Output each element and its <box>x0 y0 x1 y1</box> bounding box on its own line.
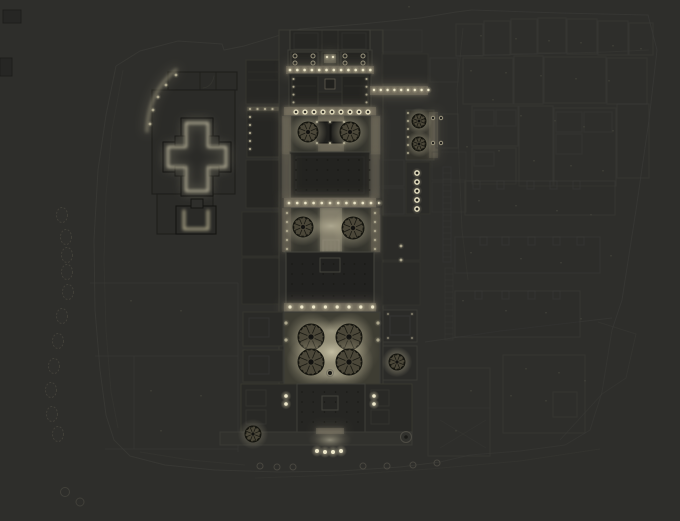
label-speck <box>560 262 562 263</box>
light-dot <box>374 221 376 223</box>
light-dot <box>407 128 409 130</box>
light-dot <box>264 108 266 110</box>
label-speck <box>510 395 512 396</box>
light-dot <box>387 313 389 315</box>
column-dot <box>354 295 356 297</box>
column-dot <box>358 189 360 191</box>
column-dot <box>312 295 314 297</box>
light-dot <box>293 101 295 103</box>
light-dot <box>331 450 335 454</box>
column-dot <box>295 189 297 191</box>
roadside-tree <box>53 427 64 442</box>
light-dot <box>366 86 368 88</box>
column-dot <box>322 263 324 265</box>
column-dot <box>295 159 297 161</box>
light-dot <box>359 305 362 308</box>
light-dot <box>288 305 291 308</box>
column-dot <box>322 283 324 285</box>
column-dot <box>328 371 332 375</box>
column-dot <box>337 169 339 171</box>
tree <box>238 419 268 449</box>
lantern-center <box>295 111 297 113</box>
light-dot <box>386 89 388 91</box>
light-dot <box>374 239 376 241</box>
column-dot <box>324 411 326 413</box>
column-dot <box>335 421 337 423</box>
light-dot <box>249 140 251 142</box>
light-dot <box>256 108 258 110</box>
building <box>175 136 185 146</box>
label-speck <box>548 40 550 41</box>
light-dot <box>165 84 168 87</box>
column-dot <box>316 159 318 161</box>
roadside-tree <box>63 285 74 300</box>
column-dot <box>312 421 314 423</box>
label-speck <box>570 165 572 166</box>
label-speck <box>520 115 522 116</box>
light-dot <box>175 74 178 77</box>
lantern-center <box>313 111 315 113</box>
light-dot <box>318 69 321 72</box>
light-dot <box>333 69 336 72</box>
column-dot <box>348 179 350 181</box>
lantern-center <box>416 190 418 192</box>
light-dot <box>303 69 306 72</box>
building <box>246 60 280 104</box>
light-dot <box>286 212 288 214</box>
light-dot <box>376 321 379 324</box>
light-dot <box>411 313 413 315</box>
label-speck <box>540 75 542 76</box>
light-dot <box>427 89 429 91</box>
label-speck <box>462 300 464 301</box>
column-dot <box>316 169 318 171</box>
light-dot <box>400 259 403 262</box>
light-dot <box>329 202 332 205</box>
tree-trunk <box>308 359 313 364</box>
label-speck <box>478 200 480 201</box>
light-dot <box>288 202 291 205</box>
column-dot <box>357 401 359 403</box>
site-plan-canvas <box>0 0 680 521</box>
column-dot <box>327 159 329 161</box>
column-dot <box>306 169 308 171</box>
tree <box>382 347 412 377</box>
tree-trunk <box>418 143 421 146</box>
label-speck <box>492 99 494 100</box>
label-speck <box>545 312 547 313</box>
lantern-center <box>358 111 360 113</box>
roadside-tree <box>57 208 68 223</box>
light-dot <box>249 108 251 110</box>
lantern-center <box>349 111 351 113</box>
column-dot <box>312 283 314 285</box>
column-dot <box>357 421 359 423</box>
light-dot <box>326 56 328 58</box>
dot-row <box>370 86 432 93</box>
column-dot <box>322 295 324 297</box>
column-dot <box>306 159 308 161</box>
comb-building <box>465 181 615 215</box>
column-base-ring <box>293 54 297 58</box>
light-dot <box>362 202 365 205</box>
building <box>342 76 368 105</box>
light-dot <box>337 202 340 205</box>
label-speck <box>583 126 585 127</box>
label-speck <box>602 170 604 171</box>
light-dot <box>339 449 343 453</box>
light-dot <box>420 89 422 91</box>
column-dot <box>301 391 303 393</box>
label-speck <box>470 70 472 71</box>
column-dot <box>354 263 356 265</box>
building <box>191 199 203 208</box>
roadside-tree <box>62 248 73 263</box>
label-speck <box>515 38 517 39</box>
column-dot <box>364 263 366 265</box>
label-speck <box>160 430 162 431</box>
light-dot <box>325 69 328 72</box>
tree <box>331 113 369 151</box>
column-dot <box>357 411 359 413</box>
label-speck <box>640 48 642 49</box>
column-dot <box>343 295 345 297</box>
light-dot <box>374 230 376 232</box>
column-dot <box>333 263 335 265</box>
tree-trunk <box>306 130 310 134</box>
column-dot <box>322 273 324 275</box>
light-dot <box>366 101 368 103</box>
label-speck <box>580 318 582 319</box>
light-dot <box>374 248 376 250</box>
column-dot <box>302 273 304 275</box>
column-dot <box>302 295 304 297</box>
light-dot <box>362 69 365 72</box>
column-dot <box>348 159 350 161</box>
column-dot <box>301 401 303 403</box>
column-dot <box>354 273 356 275</box>
light-dot <box>249 124 251 126</box>
dots <box>328 371 332 375</box>
lantern-center <box>322 111 324 113</box>
light-dot <box>347 69 350 72</box>
corner-block <box>3 10 21 23</box>
label-speck <box>408 6 410 7</box>
light-dot <box>366 78 368 80</box>
light-dot <box>329 121 331 123</box>
label-speck <box>554 120 556 121</box>
label-speck <box>612 45 614 46</box>
column-dot <box>357 391 359 393</box>
label-speck <box>180 310 182 311</box>
column-dot <box>335 411 337 413</box>
roadside-tree <box>62 265 73 280</box>
light-dot <box>376 338 379 341</box>
column-dot <box>301 421 303 423</box>
column-dot <box>364 295 366 297</box>
column-dot <box>343 283 345 285</box>
middle-hall <box>290 152 370 198</box>
label-speck <box>608 80 610 81</box>
light-dot <box>312 202 315 205</box>
light-dot <box>293 86 295 88</box>
roadside-tree <box>61 230 72 245</box>
light-dot <box>336 305 339 308</box>
light-dot <box>387 337 389 339</box>
light-dot <box>311 69 314 72</box>
column-dot <box>312 273 314 275</box>
label-speck <box>545 400 547 401</box>
light-dot <box>152 109 155 112</box>
light-dot <box>332 56 334 58</box>
label-speck <box>455 430 457 431</box>
label-speck <box>150 390 152 391</box>
comb-building <box>455 291 580 337</box>
label-speck <box>584 380 586 381</box>
light-dot <box>271 108 273 110</box>
label-speck <box>470 390 472 391</box>
main-hall <box>286 252 374 305</box>
column-base-ring <box>361 54 365 58</box>
light-dot <box>400 89 402 91</box>
tree-trunk <box>251 432 254 435</box>
label-speck <box>515 205 517 206</box>
light-dot <box>407 152 409 154</box>
column-dot <box>312 401 314 403</box>
light-dot <box>286 239 288 241</box>
roadside-tree <box>53 334 64 349</box>
lantern-center <box>416 208 418 210</box>
column-dot <box>358 179 360 181</box>
tree <box>284 208 322 246</box>
light-dot <box>407 144 409 146</box>
light-dot <box>304 202 307 205</box>
light-dot <box>293 94 295 96</box>
column-dot <box>302 283 304 285</box>
light-dot <box>372 402 376 406</box>
column-dot <box>333 273 335 275</box>
column-dot <box>312 263 314 265</box>
light-dot <box>329 142 331 144</box>
tree <box>324 337 373 386</box>
column-dot <box>312 411 314 413</box>
column-dot <box>354 283 356 285</box>
roadside-tree <box>46 383 57 398</box>
light-dot <box>407 112 409 114</box>
tree-trunk <box>348 130 352 134</box>
column-dot <box>324 391 326 393</box>
light-dot <box>249 132 251 134</box>
light-dot <box>149 123 152 126</box>
tree-trunk <box>351 226 355 230</box>
label-speck <box>575 78 577 79</box>
label-speck <box>533 160 535 161</box>
tree-trunk <box>346 359 351 364</box>
label-speck <box>480 35 482 36</box>
column-dot <box>337 179 339 181</box>
tree <box>289 113 327 151</box>
lantern-center <box>416 172 418 174</box>
building <box>242 212 282 256</box>
column-dot <box>324 401 326 403</box>
glow-band <box>280 152 293 200</box>
light-dot <box>286 248 288 250</box>
label-speck <box>466 146 468 147</box>
column-dot <box>316 189 318 191</box>
column-dot <box>404 435 408 439</box>
building <box>242 258 282 304</box>
light-dot <box>157 96 160 99</box>
light-dot <box>345 202 348 205</box>
light-dot <box>400 245 403 248</box>
label-speck <box>130 300 132 301</box>
column-base-ring <box>431 116 434 119</box>
building <box>292 76 318 105</box>
lantern-center <box>416 181 418 183</box>
column-dot <box>333 295 335 297</box>
column-dot <box>364 273 366 275</box>
lantern-center <box>304 111 306 113</box>
glow-band <box>369 114 382 156</box>
label-speck <box>612 130 614 131</box>
column-dot <box>346 391 348 393</box>
light-dot <box>366 94 368 96</box>
column-dot <box>358 169 360 171</box>
light-dot <box>293 78 295 80</box>
light-dot <box>407 120 409 122</box>
tree <box>332 207 374 249</box>
light-dot <box>284 402 288 406</box>
light-dot <box>371 305 374 308</box>
building <box>325 79 335 89</box>
column-dot <box>364 283 366 285</box>
column-base-ring <box>343 54 347 58</box>
column-dot <box>346 411 348 413</box>
roadside-tree <box>49 359 60 374</box>
column-dot <box>301 411 303 413</box>
corner-block <box>0 58 12 76</box>
light-dot <box>312 305 315 308</box>
light-dot <box>373 89 375 91</box>
column-dot <box>343 273 345 275</box>
light-dot <box>354 69 357 72</box>
column-dot <box>295 179 297 181</box>
tree-trunk <box>395 360 398 363</box>
column-dot <box>346 421 348 423</box>
label-speck <box>556 210 558 211</box>
column-dot <box>327 189 329 191</box>
column-dot <box>358 159 360 161</box>
light-dot <box>369 69 372 72</box>
column-dot <box>343 263 345 265</box>
column-dot <box>335 401 337 403</box>
light-dot <box>296 202 299 205</box>
light-dot <box>347 305 350 308</box>
building <box>246 160 282 208</box>
dots <box>404 435 408 439</box>
site-lighting-plan <box>0 0 680 521</box>
column-dot <box>302 263 304 265</box>
light-dot <box>284 394 288 398</box>
column-dot <box>291 283 293 285</box>
glow-bloom <box>369 114 382 156</box>
light-dot <box>323 450 327 454</box>
column-dot <box>333 283 335 285</box>
column-dot <box>306 189 308 191</box>
building <box>382 216 420 260</box>
column-dot <box>346 401 348 403</box>
light-dot <box>321 202 324 205</box>
light-dot <box>407 89 409 91</box>
light-dot <box>407 136 409 138</box>
light-dot <box>380 89 382 91</box>
column-base-ring <box>431 141 434 144</box>
label-speck <box>580 42 582 43</box>
lantern-center <box>367 111 369 113</box>
building <box>382 54 428 84</box>
south-gate-hall <box>297 384 365 432</box>
column-dot <box>312 391 314 393</box>
label-speck <box>590 214 592 215</box>
light-dot <box>414 89 416 91</box>
light-dot <box>372 394 376 398</box>
lantern-column <box>412 168 423 215</box>
light-dot <box>296 69 299 72</box>
column-dot <box>327 169 329 171</box>
column-base-ring <box>439 116 442 119</box>
tree-trunk <box>418 120 421 123</box>
label-speck <box>558 372 560 373</box>
label-speck <box>498 150 500 151</box>
column-dot <box>348 189 350 191</box>
label-speck <box>610 255 612 256</box>
building <box>209 136 219 146</box>
light-dot <box>300 305 303 308</box>
label-speck <box>520 258 522 259</box>
light-dot <box>393 89 395 91</box>
light-dot <box>284 321 287 324</box>
tree-trunk <box>301 225 305 229</box>
column-base-ring <box>311 54 315 58</box>
lantern-center <box>416 199 418 201</box>
column-dot <box>337 189 339 191</box>
label-speck <box>470 252 472 253</box>
column-dot <box>291 295 293 297</box>
column-dot <box>295 169 297 171</box>
glow-bloom <box>280 152 293 200</box>
column-dot <box>316 179 318 181</box>
light-dot <box>370 202 373 205</box>
column-dot <box>324 421 326 423</box>
light-dot <box>315 449 319 453</box>
lantern-center <box>331 111 333 113</box>
light-dot <box>340 69 343 72</box>
light-dot <box>289 69 292 72</box>
light-dot <box>249 116 251 118</box>
column-dot <box>348 169 350 171</box>
label-speck <box>200 395 202 396</box>
label-speck <box>525 368 527 369</box>
column-dot <box>327 179 329 181</box>
column-dot <box>291 263 293 265</box>
lantern-center <box>340 111 342 113</box>
column-dot <box>291 273 293 275</box>
column-dot <box>337 159 339 161</box>
light-dot <box>353 202 356 205</box>
light-dot <box>374 212 376 214</box>
light-dot <box>249 148 251 150</box>
light-dot <box>411 337 413 339</box>
